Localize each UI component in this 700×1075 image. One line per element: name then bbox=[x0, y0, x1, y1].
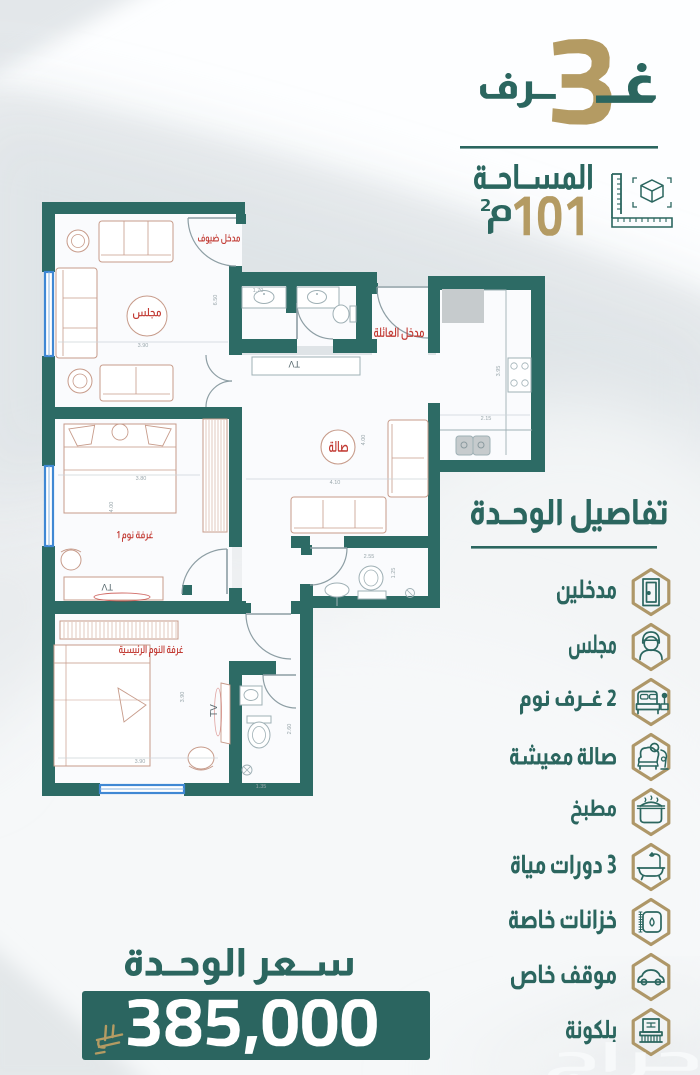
svg-text:4.00: 4.00 bbox=[361, 435, 367, 446]
svg-text:1.70: 1.70 bbox=[253, 288, 264, 294]
svg-text:1.35: 1.35 bbox=[256, 784, 267, 790]
svg-text:2.60: 2.60 bbox=[287, 724, 293, 735]
svg-text:3.80: 3.80 bbox=[136, 476, 147, 482]
svg-text:4.00: 4.00 bbox=[109, 502, 115, 513]
svg-text:2.55: 2.55 bbox=[364, 554, 375, 560]
svg-text:3.90: 3.90 bbox=[138, 343, 149, 349]
svg-text:3.95: 3.95 bbox=[496, 366, 502, 377]
svg-text:TV: TV bbox=[101, 582, 113, 592]
svg-text:6.50: 6.50 bbox=[213, 295, 219, 306]
svg-text:TV: TV bbox=[209, 704, 220, 717]
svg-text:3.90: 3.90 bbox=[180, 692, 186, 703]
svg-text:3.90: 3.90 bbox=[135, 759, 146, 765]
svg-text:1.25: 1.25 bbox=[391, 568, 397, 579]
svg-text:4.10: 4.10 bbox=[330, 480, 341, 486]
svg-text:TV: TV bbox=[288, 359, 300, 369]
svg-text:2.15: 2.15 bbox=[481, 416, 492, 422]
